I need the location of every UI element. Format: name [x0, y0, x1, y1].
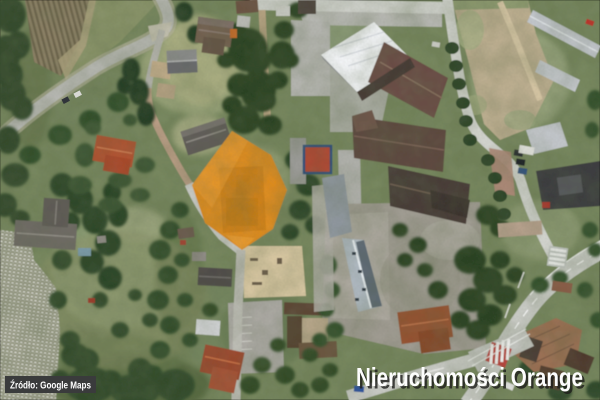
svg-text:Nieruchomości Orange: Nieruchomości Orange [356, 362, 583, 392]
svg-text:Źródło: Google Maps: Źródło: Google Maps [10, 379, 91, 392]
